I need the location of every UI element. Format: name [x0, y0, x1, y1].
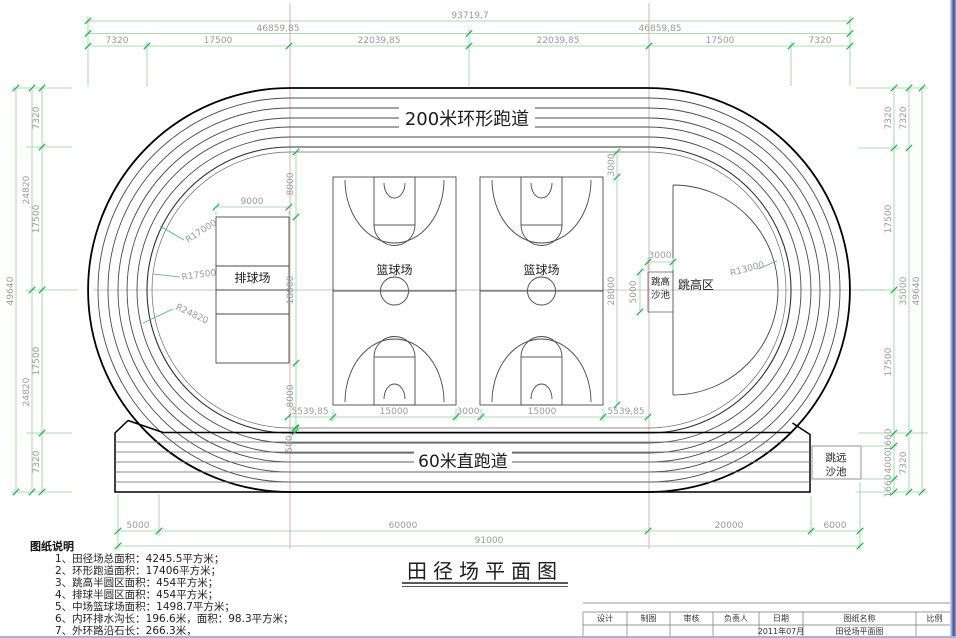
dim-label: 17500 — [884, 204, 894, 233]
notes-item: 5、中场篮球场面积：1498.7平方米； — [55, 600, 235, 613]
high-jump-pit-label: 沙池 — [651, 289, 671, 301]
straight-track-label: 60米直跑道 — [418, 452, 508, 472]
radius-label: R17000 — [184, 218, 219, 246]
titleblock-header: 负责人 — [724, 613, 748, 623]
ring-track-label: 200米环形跑道 — [405, 109, 529, 130]
titleblock-header: 图纸名称 — [844, 613, 876, 623]
dim-label: 22039,85 — [358, 36, 401, 46]
dim-label: 5000 — [629, 280, 639, 303]
dim-label: 5000 — [127, 521, 150, 531]
dim-label: 7320 — [884, 106, 894, 129]
dim-label: 22039,85 — [537, 36, 580, 46]
titleblock-header: 比例 — [927, 613, 943, 623]
cad-viewport: 93719,7 46859,85 46859,85 7320 17500 220… — [0, 0, 956, 638]
notes-item: 1、田径场总面积：4245.5平方米； — [55, 552, 224, 565]
dim-label: 5539,85 — [291, 407, 328, 417]
titleblock-header: 审核 — [684, 613, 700, 623]
dim-label: 1660 — [884, 428, 894, 451]
dim-label: 5539,85 — [607, 407, 644, 417]
dim-label: 35000 — [899, 276, 909, 305]
dim-label: 18000 — [286, 275, 296, 304]
dim-label: 7320 — [32, 450, 42, 473]
volleyball-label: 排球场 — [234, 271, 270, 285]
notes-item: 2、环形跑道面积：17406平方米； — [55, 564, 221, 577]
basketball-courts — [333, 177, 603, 405]
dim-label: 8000 — [286, 384, 296, 407]
cad-drawing: 93719,7 46859,85 46859,85 7320 17500 220… — [0, 0, 956, 638]
dim-label: 7320 — [899, 106, 909, 129]
dim-label: 17500 — [32, 346, 42, 375]
basketball-label: 篮球场 — [523, 262, 559, 277]
dim-label: 93719,7 — [451, 11, 488, 21]
dim-label: 7320 — [32, 106, 42, 129]
radius-label: R17500 — [181, 268, 217, 283]
high-jump-pit-label: 跳高 — [651, 276, 670, 288]
radius-label: R24820 — [174, 303, 210, 327]
dim-label: 91000 — [475, 536, 504, 546]
window-right-edge — [950, 0, 956, 638]
facility-labels: 200米环形跑道 60米直跑道 排球场 篮球场 篮球场 跳高区 跳高 沙池 跳远… — [234, 103, 847, 478]
dim-label: 7320 — [809, 36, 832, 46]
dim-label: 46859,85 — [257, 24, 300, 34]
dim-label: 8000 — [286, 172, 296, 195]
dim-label: 6000 — [824, 521, 847, 531]
titleblock-name: 田径场平面图 — [836, 626, 884, 636]
notes-title: 图纸说明 — [30, 539, 74, 553]
notes: 图纸说明 1、田径场总面积：4245.5平方米； 2、环形跑道面积：17406平… — [30, 539, 294, 637]
titleblock-header: 日期 — [773, 614, 789, 623]
long-jump-pit-label: 沙池 — [826, 465, 847, 478]
dim-label: 4000 — [884, 450, 894, 473]
dim-label: 15000 — [380, 407, 409, 417]
high-jump-area-label: 跳高区 — [678, 277, 714, 292]
drawing-title: 田径场平面图 — [402, 559, 568, 587]
notes-item: 6、内环排水沟长：196.6米，面积：98.3平方米； — [55, 612, 294, 625]
notes-item: 3、跳高半圆区面积：454平方米； — [55, 576, 218, 589]
dim-label: 24820 — [22, 175, 32, 204]
dim-label: 46859,85 — [639, 24, 682, 34]
title-block: 设计 制图 审核 负责人 日期 图纸名称 比例 2011年07月 田径场平面图 — [583, 603, 953, 638]
dim-label: 7320 — [106, 36, 129, 46]
dim-label: 7320 — [899, 451, 909, 474]
basketball-label: 篮球场 — [376, 262, 412, 277]
dim-label: 1660 — [884, 474, 894, 497]
dim-label: 15000 — [528, 407, 557, 417]
titleblock-header: 制图 — [641, 613, 657, 623]
dim-label: 17500 — [884, 347, 894, 376]
dim-label: 60000 — [389, 521, 418, 531]
dim-label: 3000 — [607, 153, 617, 176]
dim-label: 17500 — [706, 36, 735, 46]
dim-label: 3000 — [649, 251, 672, 261]
dim-label: 49640 — [6, 276, 16, 305]
notes-item: 4、排球半圆区面积：454平方米； — [55, 588, 218, 601]
volleyball-court — [216, 217, 289, 363]
titleblock-header: 设计 — [597, 613, 613, 623]
dim-label: 17500 — [32, 204, 42, 233]
radius-label: R13000 — [729, 260, 766, 279]
dim-label: 20000 — [715, 521, 744, 531]
dim-label: 24820 — [22, 377, 32, 406]
dim-label: 3000 — [457, 407, 480, 417]
dim-label: 49640 — [912, 276, 922, 305]
dim-label: 28000 — [607, 276, 617, 305]
long-jump-pit-label: 跳远 — [826, 451, 847, 464]
titleblock-date: 2011年07月 — [758, 626, 805, 636]
dim-label: 9000 — [241, 197, 264, 207]
drawing-title-text: 田径场平面图 — [407, 559, 563, 583]
dim-label: 17500 — [204, 36, 233, 46]
dim-label: 500 — [285, 435, 295, 452]
